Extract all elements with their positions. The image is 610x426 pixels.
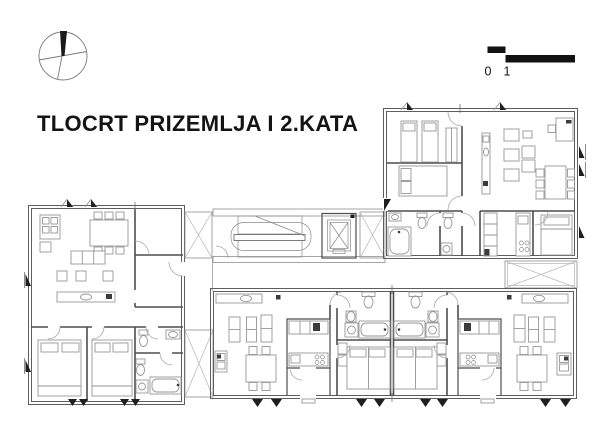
- side-unit: [215, 351, 227, 372]
- bed: [38, 340, 81, 396]
- bathtub: [359, 321, 390, 338]
- bed: [394, 347, 437, 389]
- bathtub: [394, 321, 425, 338]
- scale-label-1: 1: [504, 65, 511, 79]
- bed: [401, 121, 417, 162]
- bathtub: [388, 227, 411, 256]
- bed: [347, 347, 390, 389]
- floor-plan-sheet: 0 1 TLOCRT PRIZEMLJA I 2.KATA: [0, 0, 610, 426]
- page-title: TLOCRT PRIZEMLJA I 2.KATA: [37, 111, 358, 136]
- bed: [399, 166, 447, 196]
- side-unit: [557, 353, 571, 375]
- bed: [422, 121, 438, 162]
- bathtub: [150, 377, 181, 394]
- tv-bench: [57, 292, 115, 302]
- kitchen-island: [482, 133, 490, 194]
- wardrobe: [446, 128, 457, 162]
- scale-main-bar: [506, 55, 576, 63]
- bed: [541, 215, 572, 255]
- scale-step: [488, 47, 506, 54]
- bed: [92, 340, 132, 396]
- scale-label-0: 0: [485, 65, 492, 79]
